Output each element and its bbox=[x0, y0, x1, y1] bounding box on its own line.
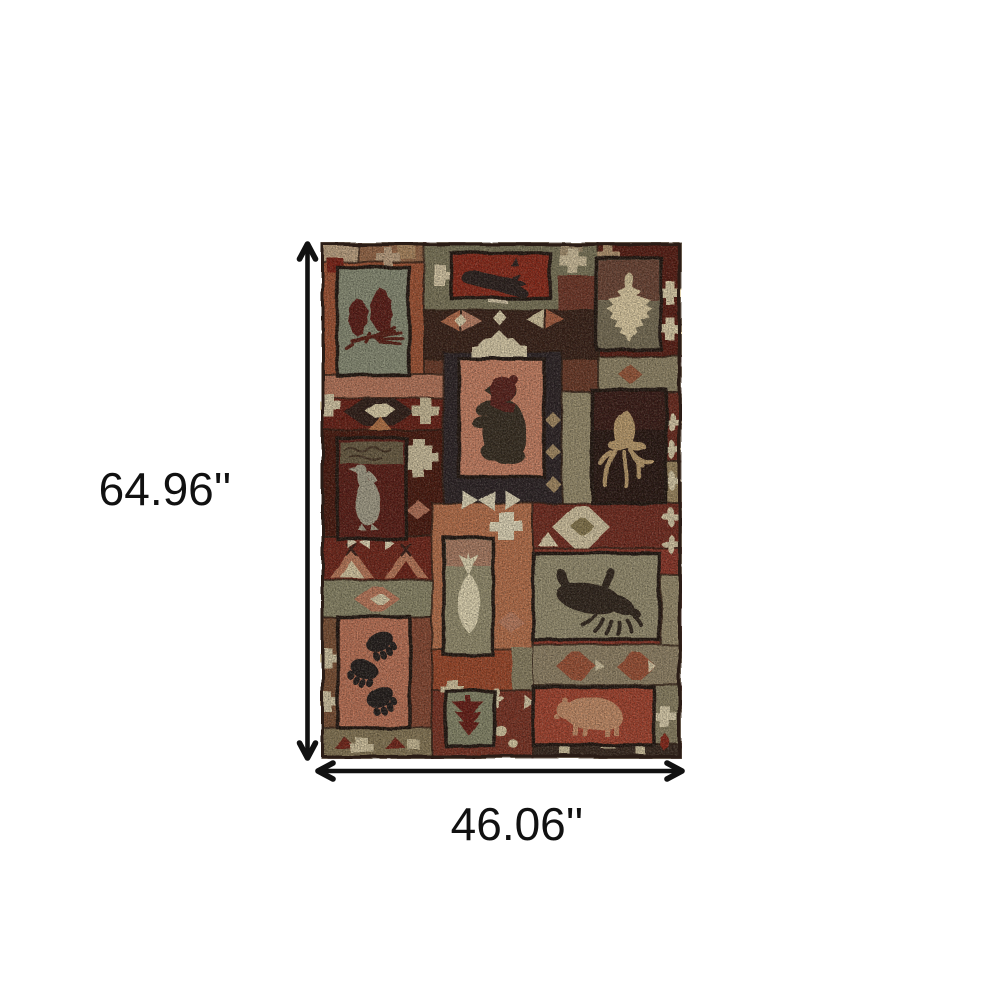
svg-text:64.96'': 64.96'' bbox=[99, 463, 232, 515]
svg-text:46.06'': 46.06'' bbox=[451, 798, 584, 850]
